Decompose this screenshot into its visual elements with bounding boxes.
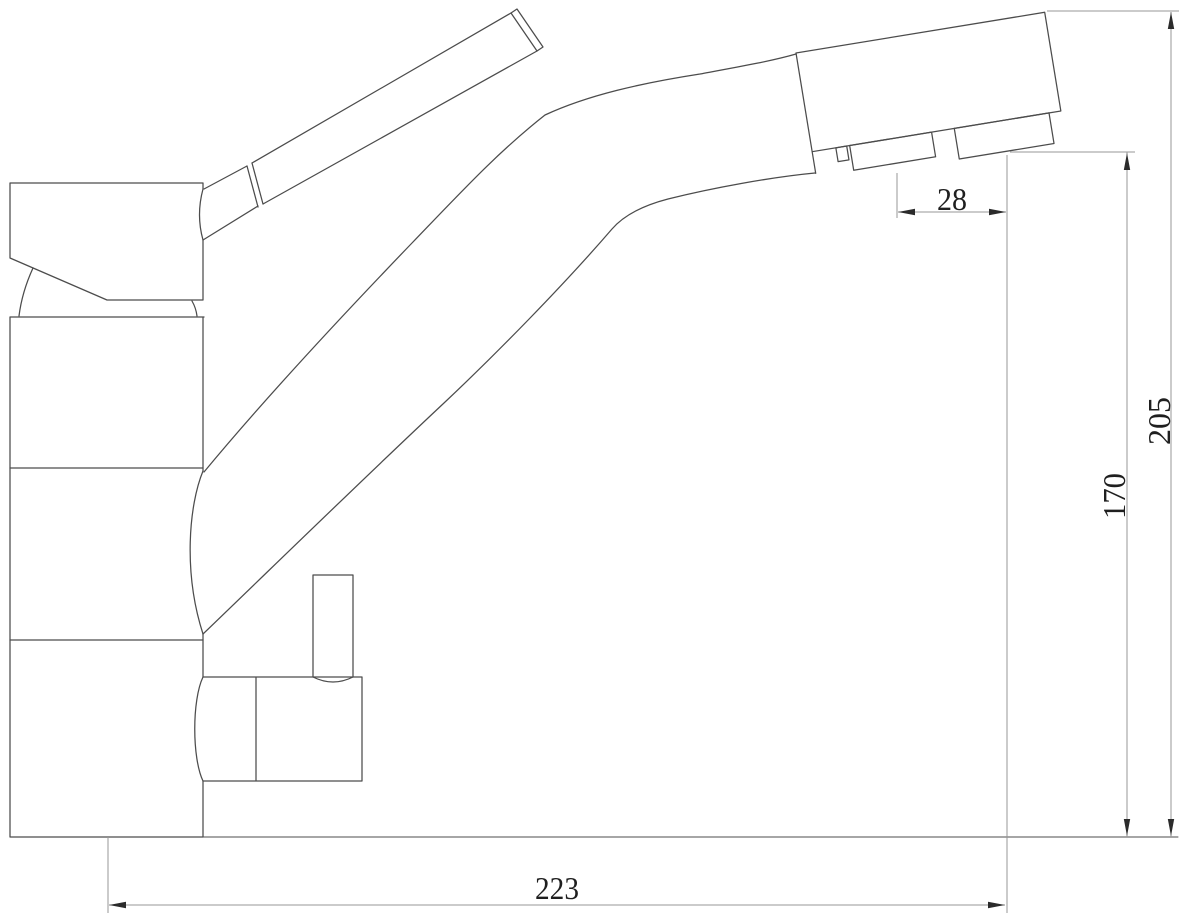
head-tab xyxy=(836,146,849,162)
arrow-223-left xyxy=(109,902,126,908)
spout-body-fillet xyxy=(190,471,203,634)
handle-bar xyxy=(252,13,537,204)
arrow-205-top xyxy=(1168,12,1174,29)
spout xyxy=(203,54,815,634)
extension-lines xyxy=(108,11,1179,913)
arrow-170-bottom xyxy=(1124,819,1130,836)
handle-neck-arc xyxy=(200,189,204,240)
faucet-body xyxy=(10,317,204,837)
aerator-left xyxy=(850,132,936,170)
spout-head xyxy=(796,12,1066,182)
dimension-label-223: 223 xyxy=(535,870,579,906)
outlet-body xyxy=(203,677,362,781)
dimension-label-170: 170 xyxy=(1096,473,1132,519)
body-ring-lines xyxy=(10,468,203,640)
spout-bottom-edge xyxy=(203,173,815,634)
dimension-annotations: 28 170 205 223 xyxy=(108,11,1179,913)
dimension-label-205: 205 xyxy=(1141,397,1177,445)
faucet-technical-drawing: 28 170 205 223 xyxy=(0,0,1182,918)
handle-tip-cap xyxy=(511,9,543,51)
arrow-205-bottom xyxy=(1168,819,1174,836)
filter-outlet xyxy=(195,575,362,781)
arrow-223-right xyxy=(988,902,1005,908)
dome-arcs xyxy=(19,268,197,316)
head-left-edge-extension xyxy=(812,152,816,174)
spout-top-edge xyxy=(204,54,796,472)
outlet-pipe xyxy=(313,575,353,682)
handle-collar xyxy=(247,163,263,207)
handle-lever xyxy=(203,9,543,240)
drawing-svg: 28 170 205 223 xyxy=(0,0,1182,918)
arrow-170-top xyxy=(1124,153,1130,170)
arrow-28-right xyxy=(989,209,1006,215)
faucet-outline xyxy=(10,9,1178,837)
dimension-label-28: 28 xyxy=(937,181,967,217)
cartridge-housing xyxy=(10,183,203,316)
head-block xyxy=(796,12,1061,151)
outlet-body-bulge xyxy=(195,677,203,781)
arrow-28-left xyxy=(898,209,915,215)
arrowheads xyxy=(109,12,1174,908)
